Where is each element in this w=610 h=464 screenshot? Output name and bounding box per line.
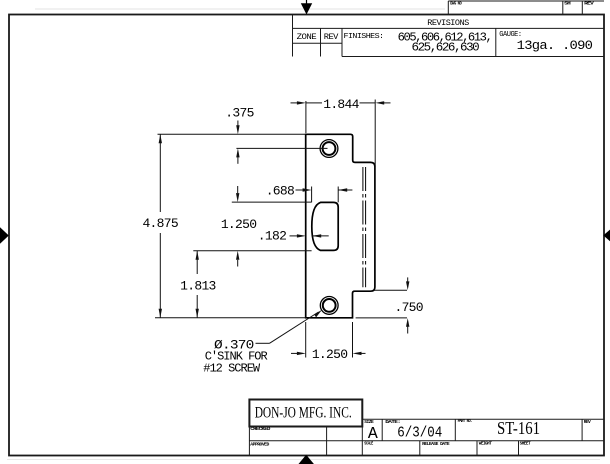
svg-text:.375: .375: [225, 106, 253, 121]
svg-text:1.250: 1.250: [312, 347, 348, 362]
svg-text:CHECKED: CHECKED: [250, 426, 271, 432]
svg-text:1.844: 1.844: [323, 97, 359, 112]
svg-text:REV: REV: [584, 1, 594, 7]
svg-text:.688: .688: [266, 183, 294, 198]
svg-text:ST-161: ST-161: [497, 418, 540, 438]
svg-text:A: A: [368, 424, 378, 443]
svg-text:DWG NO: DWG NO: [450, 1, 462, 7]
svg-text:RELEASE DATE: RELEASE DATE: [422, 441, 450, 447]
svg-text:REV: REV: [324, 33, 339, 42]
svg-text:WEIGHT: WEIGHT: [479, 441, 492, 447]
svg-text:APPROVED: APPROVED: [250, 441, 269, 447]
svg-text:ZONE: ZONE: [297, 33, 317, 42]
svg-text:FINISHES:: FINISHES:: [344, 33, 384, 41]
svg-text:13ga. .090: 13ga. .090: [517, 38, 593, 53]
svg-text:DATE:: DATE:: [385, 419, 400, 425]
svg-text:SHEET: SHEET: [520, 441, 531, 447]
svg-text:625,626,630: 625,626,630: [412, 40, 480, 54]
svg-text:#12 SCREW: #12 SCREW: [203, 361, 261, 375]
svg-text:DON-JO MFG. INC.: DON-JO MFG. INC.: [255, 405, 352, 422]
svg-text:6/3/04: 6/3/04: [397, 425, 442, 441]
svg-text:4.875: 4.875: [142, 216, 178, 231]
svg-text:1.250: 1.250: [221, 217, 257, 232]
svg-text:.182: .182: [258, 228, 286, 243]
svg-text:PART NO.: PART NO.: [458, 418, 473, 424]
svg-text:1.813: 1.813: [180, 279, 216, 294]
svg-text:.750: .750: [394, 300, 422, 315]
svg-text:SCALE: SCALE: [364, 441, 373, 447]
svg-text:REV: REV: [584, 419, 591, 425]
svg-text:REVISIONS: REVISIONS: [427, 18, 469, 28]
